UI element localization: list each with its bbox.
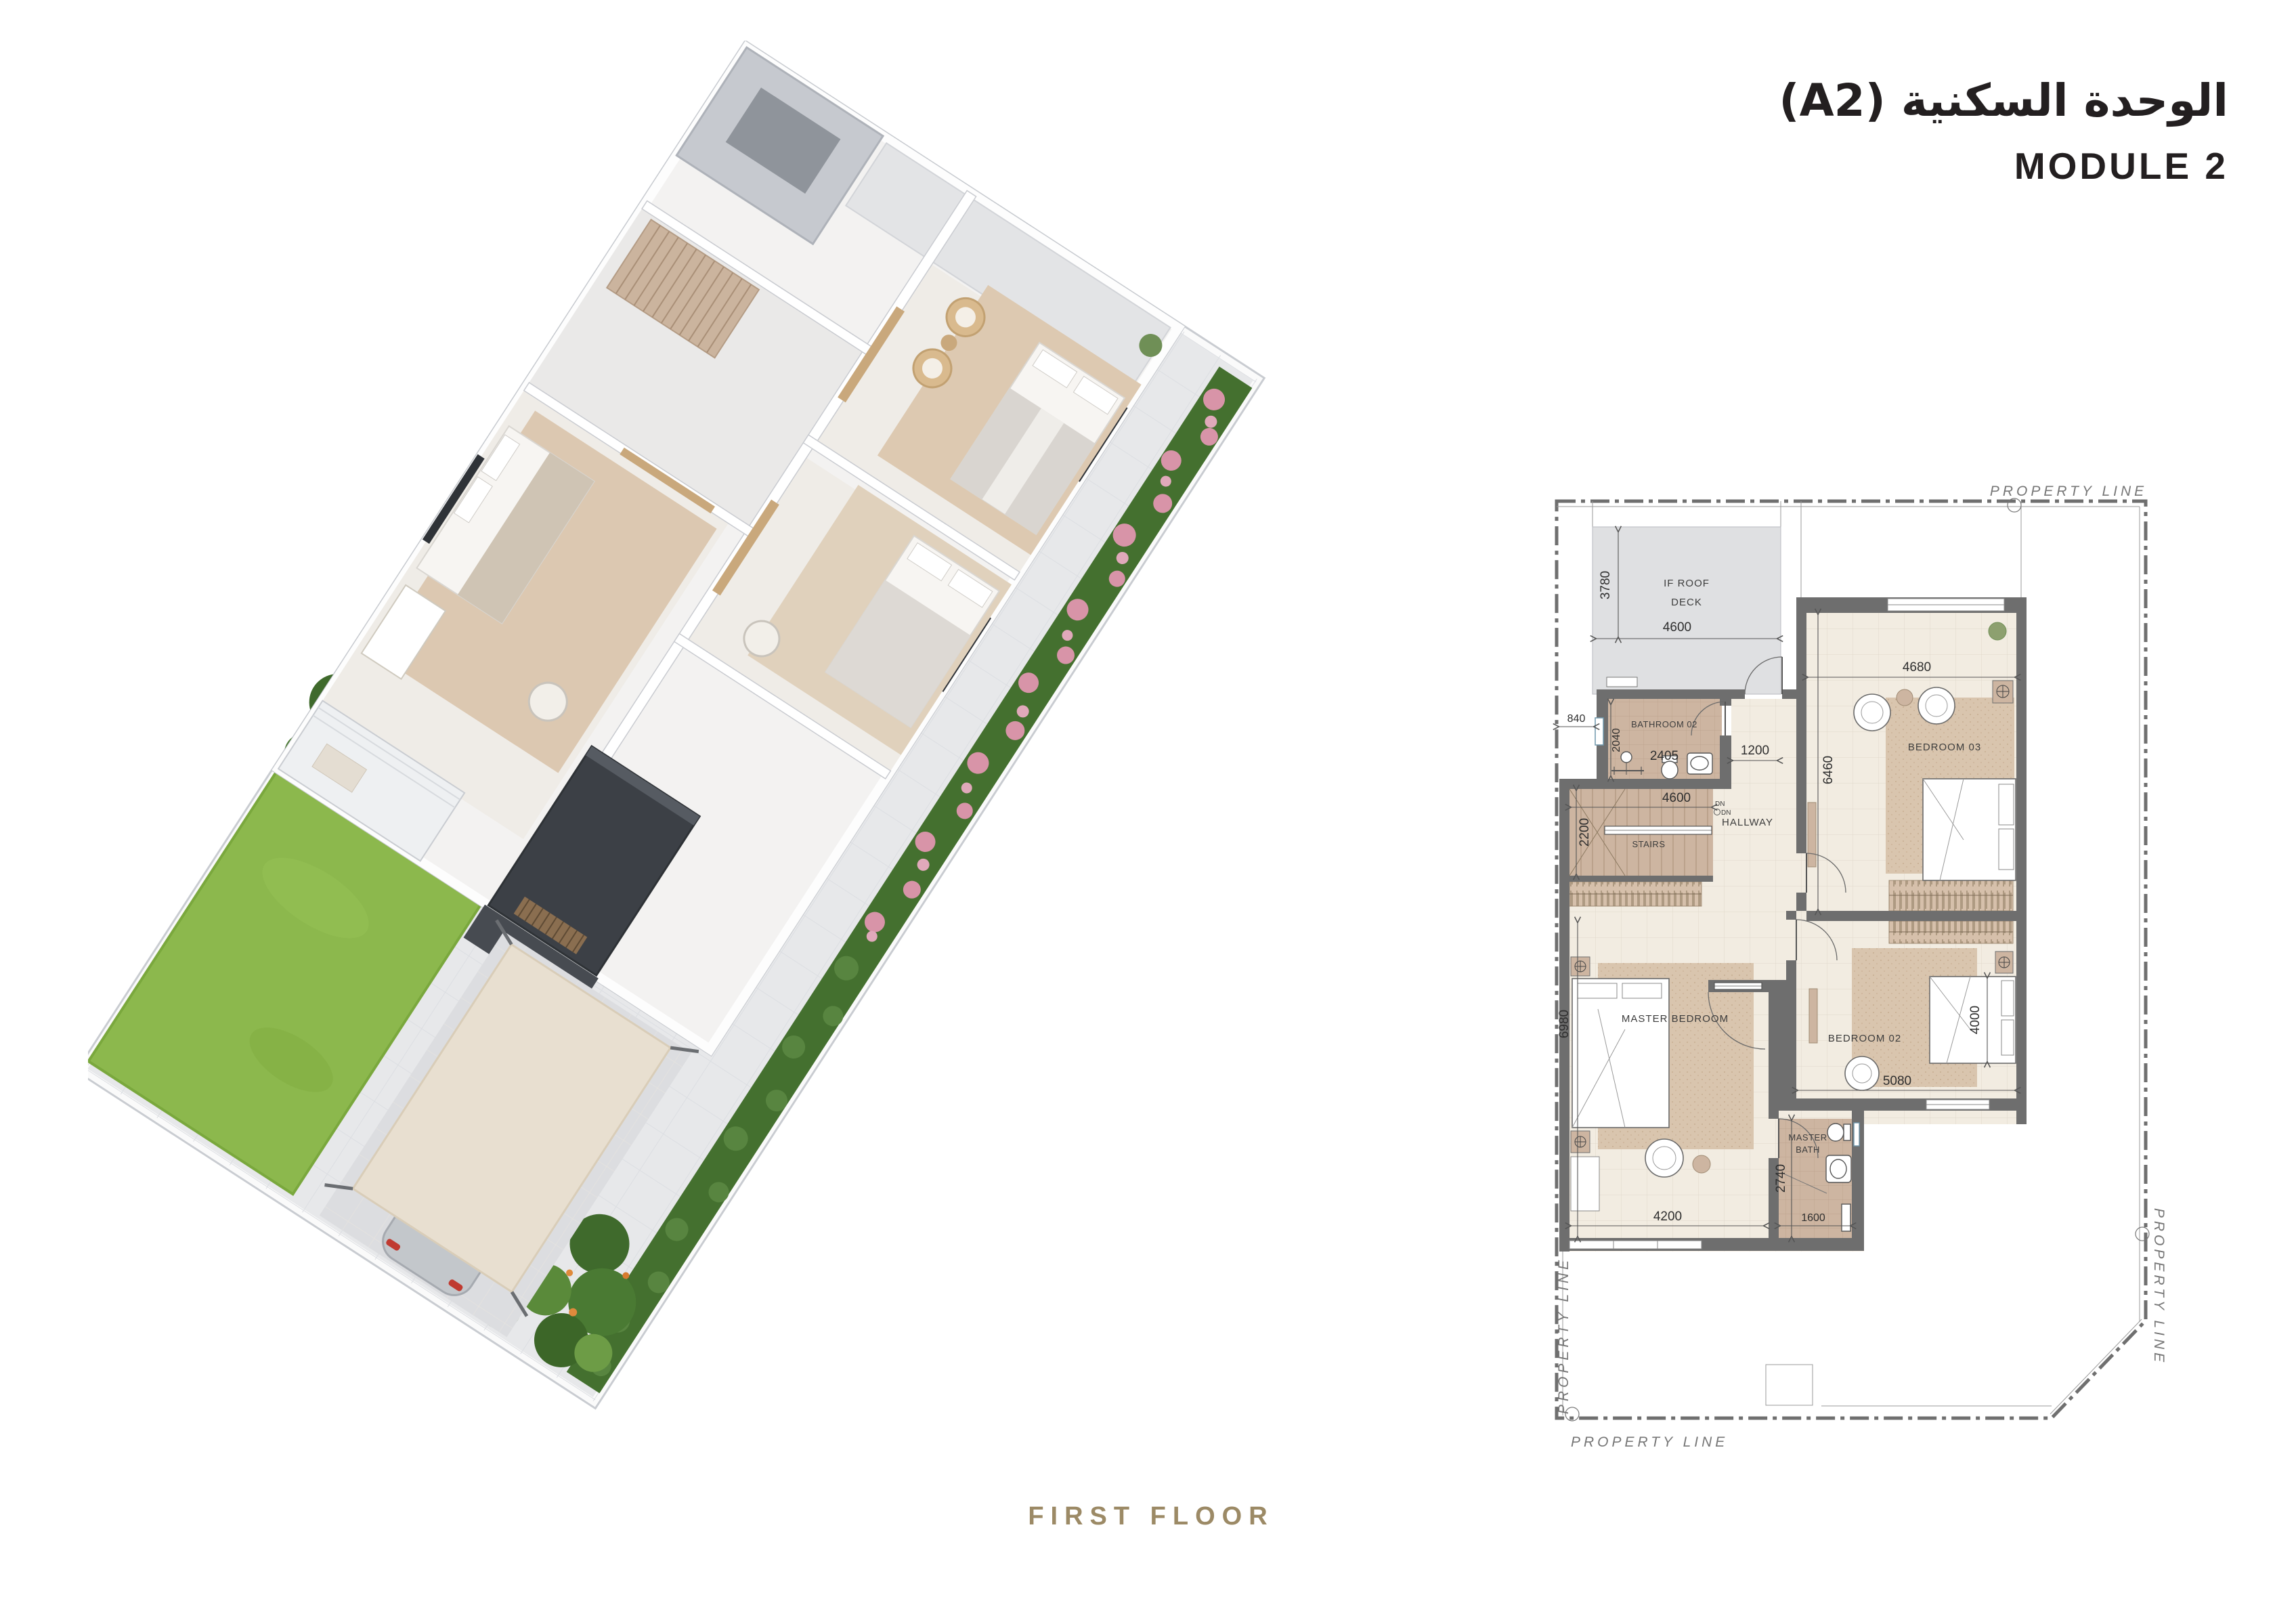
property-line-label-bottom: PROPERTY LINE: [1571, 1434, 1728, 1450]
deck-railing: [1607, 677, 1637, 687]
floor-label: FIRST FLOOR: [992, 1502, 1310, 1531]
property-line-label-right: PROPERTY LINE: [2151, 1208, 2167, 1365]
master-bath-label-1: MASTER: [1788, 1132, 1827, 1142]
master-bath-label-2: BATH: [1796, 1145, 1820, 1155]
dim-stairs-w: 4600: [1662, 791, 1691, 805]
dim-bedroom03-w: 4680: [1903, 660, 1931, 675]
dim-master-w: 4200: [1653, 1210, 1682, 1224]
dim-bedroom02-bed: 4000: [1968, 1006, 1983, 1034]
stairs-label: STAIRS: [1632, 839, 1666, 849]
dim-hall-w: 1200: [1741, 744, 1769, 758]
property-line-label-left: PROPERTY LINE: [1556, 1257, 1572, 1414]
bathroom02-label: BATHROOM 02: [1631, 719, 1697, 729]
isometric-render: [88, 41, 1280, 1463]
dim-roof-deck-h: 3780: [1599, 571, 1613, 599]
dim-bath-h: 2040: [1611, 728, 1622, 752]
dim-bath-w: 2405: [1650, 749, 1678, 763]
dim-master-bath-w: 1600: [1801, 1212, 1825, 1224]
entry-pad: [1766, 1365, 1813, 1405]
floor-plan-2d: PROPERTY LINE PROPERTY LINE PROPERTY LIN…: [1544, 474, 2231, 1490]
dim-stairs-h: 2200: [1578, 818, 1592, 847]
hallway-label: HALLWAY: [1722, 817, 1773, 828]
floors: [1569, 527, 2016, 1252]
master-bedroom-label: MASTER BEDROOM: [1622, 1013, 1729, 1025]
dn-label-2: DN: [1721, 809, 1731, 817]
dn-label-1: DN: [1715, 800, 1725, 808]
dim-master-bath-h: 2740: [1774, 1164, 1788, 1193]
dim-master-h: 6980: [1557, 1010, 1572, 1038]
dim-bedroom03-h: 6460: [1821, 756, 1836, 784]
dim-roof-deck-w: 4600: [1663, 620, 1691, 635]
dim-bedroom02-w: 5080: [1883, 1074, 1911, 1088]
bedroom02-label: BEDROOM 02: [1828, 1033, 1901, 1044]
roof-deck: [1593, 527, 1781, 694]
roof-deck-label-2: DECK: [1671, 597, 1702, 608]
dim-setback: 840: [1567, 713, 1586, 725]
page-title-module: MODULE 2: [1779, 144, 2228, 188]
site-group: [88, 41, 1264, 1409]
page-title-arabic: الوحدة السكنية (A2): [1779, 74, 2228, 127]
property-line-label-top: PROPERTY LINE: [1990, 484, 2147, 499]
title-block: الوحدة السكنية (A2) MODULE 2: [1779, 74, 2228, 188]
roof-deck-label-1: IF ROOF: [1664, 578, 1710, 589]
bedroom03-label: BEDROOM 03: [1908, 742, 1981, 753]
brochure-page: الوحدة السكنية (A2) MODULE 2: [0, 0, 2296, 1624]
